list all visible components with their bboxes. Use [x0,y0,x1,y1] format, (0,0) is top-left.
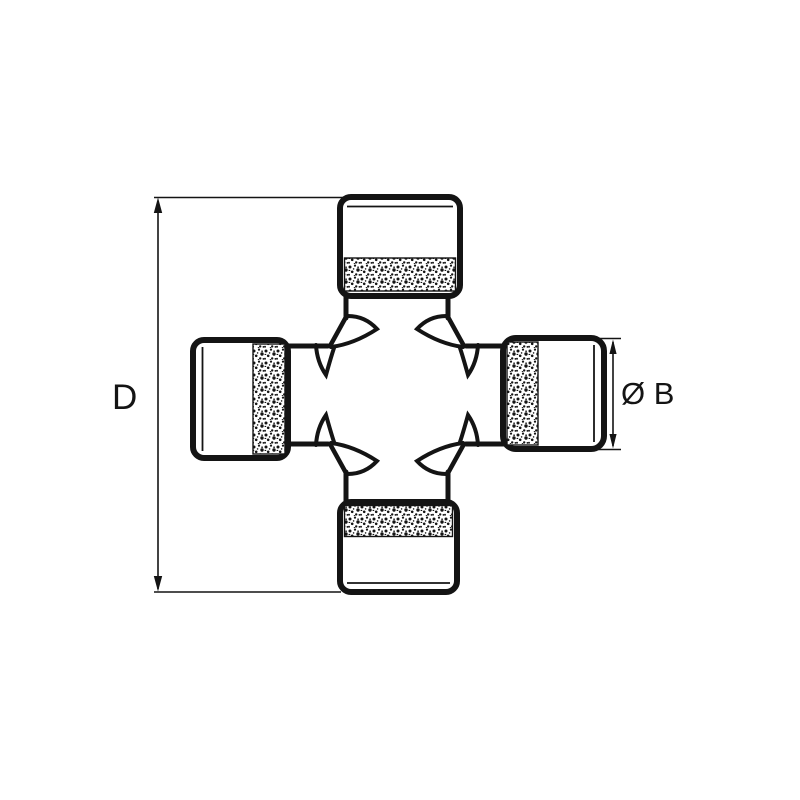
seal-band [345,506,453,537]
corner-chamfer-line [448,444,464,473]
dimension-d-label: D [112,378,137,417]
arrowhead-down-icon [609,434,616,449]
bearing-cups [193,197,604,592]
bearing-cup-bottom [340,502,457,592]
fillet-wing [316,345,334,375]
bearing-cup-top [340,197,460,296]
trunnion-fillet-ne [417,286,514,375]
arrowhead-down-icon [154,576,162,592]
corner-chamfer-line [448,317,464,346]
arrowhead-up-icon [609,340,616,355]
corner-chamfer-line [330,317,346,346]
seal-band [253,344,285,454]
bearing-cup-left [193,340,288,458]
seal-band [507,342,538,445]
fillet-wing [460,415,478,445]
trunnion-fillet-se [417,415,514,504]
u-joint-cross-drawing: D Ø B [0,0,800,800]
arrowhead-up-icon [154,198,162,214]
fillet-wing [460,345,478,375]
dimension-b-label: Ø B [621,376,674,411]
cross-journal-body [280,286,514,504]
corner-chamfer-line [330,444,346,473]
seal-band [345,258,456,291]
fillet-wing [316,415,334,445]
bearing-cup-right [503,338,604,449]
technical-drawing-page: D Ø B [0,0,800,800]
trunnion-fillet-nw [280,286,377,375]
trunnion-fillet-sw [280,415,377,504]
